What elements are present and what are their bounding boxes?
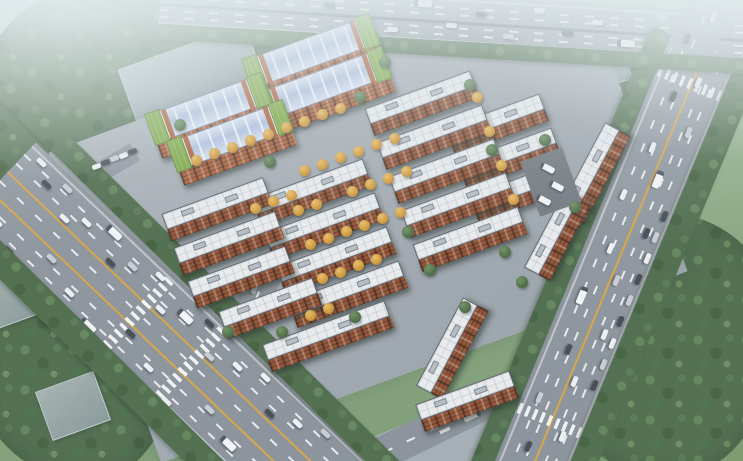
autumn-tree: [335, 267, 346, 278]
vehicle: [414, 0, 432, 7]
autumn-tree: [353, 146, 364, 157]
autumn-tree: [227, 142, 238, 153]
autumn-tree: [317, 109, 328, 120]
autumn-tree: [281, 122, 292, 133]
autumn-tree: [377, 213, 388, 224]
lane-marking: [136, 0, 743, 21]
vehicle: [534, 8, 545, 14]
autumn-tree: [371, 139, 382, 150]
aerial-rendering-scene: [0, 0, 743, 461]
vehicle: [710, 12, 719, 24]
vehicle: [387, 27, 398, 33]
autumn-tree: [317, 273, 328, 284]
autumn-tree: [359, 220, 370, 231]
autumn-tree: [299, 116, 310, 127]
green-tree: [402, 226, 414, 238]
autumn-tree: [299, 165, 310, 176]
autumn-tree: [484, 126, 495, 137]
green-tree: [174, 119, 186, 131]
vehicle: [524, 441, 533, 453]
green-tree: [424, 264, 436, 276]
green-tree: [264, 156, 276, 168]
autumn-tree: [305, 310, 316, 321]
autumn-tree: [245, 135, 256, 146]
autumn-tree: [496, 160, 507, 171]
autumn-tree: [472, 92, 483, 103]
vehicle: [324, 3, 335, 9]
autumn-tree: [353, 260, 364, 271]
vehicle: [503, 34, 514, 40]
green-tree: [222, 326, 234, 338]
green-tree: [349, 311, 361, 323]
green-tree: [569, 201, 581, 213]
vehicle: [475, 12, 486, 18]
autumn-tree: [508, 194, 519, 205]
autumn-tree: [401, 166, 412, 177]
green-tree: [276, 326, 288, 338]
green-tree: [354, 91, 366, 103]
autumn-tree: [317, 159, 328, 170]
vehicle: [619, 189, 628, 201]
vehicle: [648, 141, 657, 153]
green-tree: [464, 79, 476, 91]
autumn-tree: [293, 205, 304, 216]
vehicle: [616, 40, 634, 48]
vehicle: [592, 19, 603, 25]
green-tree: [539, 134, 551, 146]
autumn-tree: [311, 199, 322, 210]
autumn-tree: [268, 196, 279, 207]
autumn-tree: [263, 129, 274, 140]
autumn-tree: [286, 190, 297, 201]
autumn-tree: [365, 179, 376, 190]
autumn-tree: [335, 152, 346, 163]
vehicle: [683, 33, 692, 45]
autumn-tree: [191, 155, 202, 166]
green-tree: [516, 276, 528, 288]
green-tree: [379, 56, 391, 68]
vehicle: [535, 391, 544, 403]
autumn-tree: [389, 133, 400, 144]
green-tree: [499, 246, 511, 258]
autumn-tree: [341, 226, 352, 237]
autumn-tree: [323, 303, 334, 314]
autumn-tree: [323, 233, 334, 244]
vehicle: [575, 286, 588, 305]
autumn-tree: [371, 254, 382, 265]
green-tree: [486, 144, 498, 156]
autumn-tree: [305, 239, 316, 250]
autumn-tree: [347, 186, 358, 197]
autumn-tree: [383, 173, 394, 184]
green-tree: [459, 301, 471, 313]
autumn-tree: [209, 148, 220, 159]
autumn-tree: [250, 203, 261, 214]
autumn-tree: [395, 207, 406, 218]
autumn-tree: [335, 103, 346, 114]
vehicle: [562, 30, 573, 36]
